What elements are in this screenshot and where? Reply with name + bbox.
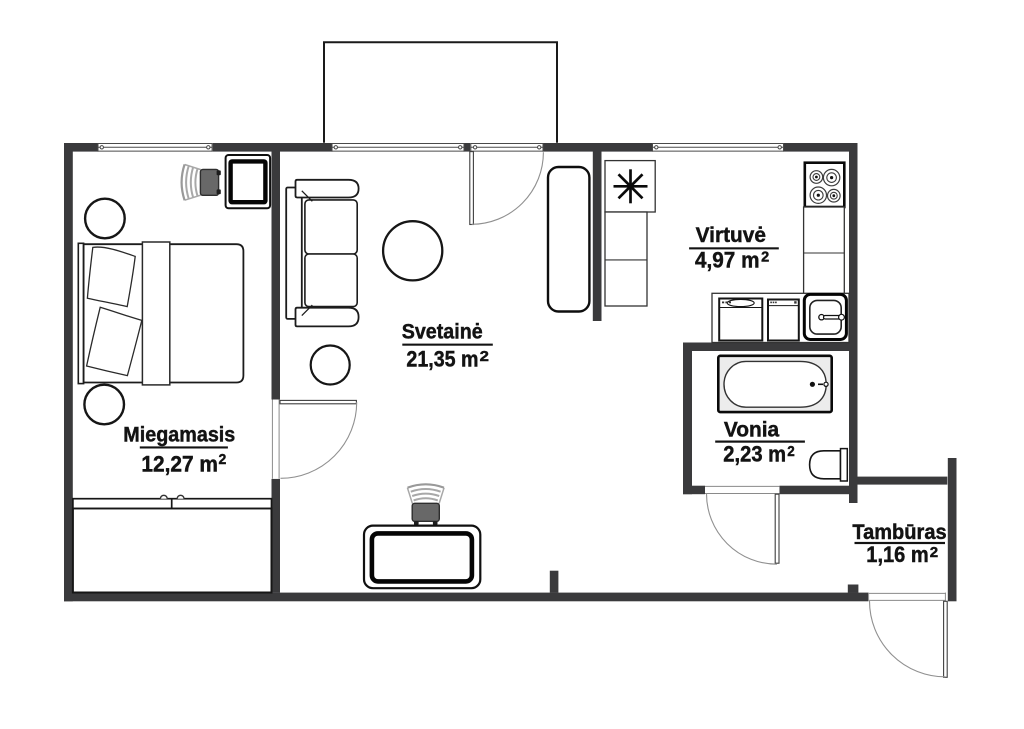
svg-text:Svetainė: Svetainė [402,319,483,343]
svg-text:Tambūras: Tambūras [852,520,946,544]
svg-text:2,23 m: 2,23 m [723,442,786,467]
svg-text:Virtuvė: Virtuvė [696,223,766,247]
svg-text:21,35 m: 21,35 m [406,347,478,372]
svg-text:2: 2 [761,250,769,266]
svg-text:2: 2 [480,349,489,365]
svg-text:2: 2 [930,545,938,561]
svg-text:Vonia: Vonia [724,417,780,441]
svg-text:2: 2 [787,444,795,460]
svg-text:2: 2 [219,452,227,468]
svg-text:1,16 m: 1,16 m [866,542,928,567]
svg-text:12,27 m: 12,27 m [141,451,218,476]
svg-text:Miegamasis: Miegamasis [123,423,235,447]
svg-text:4,97 m: 4,97 m [695,247,760,272]
